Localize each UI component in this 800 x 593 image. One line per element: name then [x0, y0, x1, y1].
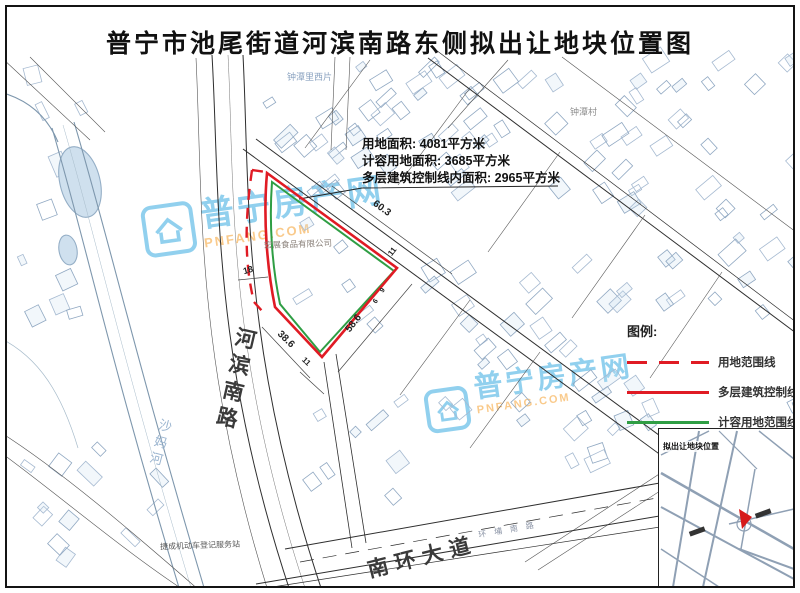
inset-road-tag	[689, 526, 706, 536]
info-line-land-area: 用地面积: 4081平方米	[362, 136, 560, 153]
inset-map-canvas	[659, 429, 796, 589]
red-dashed-line-swatch	[627, 361, 709, 364]
company-label: 宏展食品有限公司	[264, 237, 332, 251]
legend-item-label: 用地范围线	[718, 354, 776, 370]
info-value: 2965平方米	[495, 171, 560, 185]
water-layer	[0, 92, 205, 591]
info-line-frr-area: 计容用地面积: 3685平方米	[362, 153, 560, 170]
legend-title: 图例:	[627, 321, 799, 340]
inset-locator-map: 拟出让地块位置	[658, 428, 797, 590]
legend-item-building-control: 多层建筑控制线	[627, 384, 799, 400]
info-label: 计容用地面积:	[362, 154, 441, 168]
map-title: 普宁市池尾街道河滨南路东侧拟出让地块位置图	[0, 24, 800, 60]
inset-road-tag	[755, 508, 772, 518]
plot-info-box: 用地面积: 4081平方米 计容用地面积: 3685平方米 多层建筑控制线内面积…	[362, 136, 560, 187]
inset-label: 拟出让地块位置	[662, 441, 720, 452]
inset-roads-layer	[661, 431, 794, 587]
dimension-lines-layer	[238, 186, 558, 394]
place-label-zhongtan-village: 钟潭村	[570, 105, 597, 118]
place-label-zhongtan-west: 钟潭里西片	[287, 70, 332, 83]
info-label: 多层建筑控制线内面积:	[362, 171, 491, 185]
legend-item-label: 多层建筑控制线	[718, 384, 799, 400]
legend: 图例: 用地范围线 多层建筑控制线 计容用地范围线	[627, 321, 799, 430]
legend-item-land-boundary: 用地范围线	[627, 354, 799, 370]
green-solid-line-swatch	[627, 421, 709, 424]
red-solid-line-swatch	[627, 391, 709, 394]
info-label: 用地面积:	[362, 137, 416, 151]
info-value: 3685平方米	[445, 154, 510, 168]
info-value: 4081平方米	[420, 137, 485, 151]
info-line-control-area: 多层建筑控制线内面积: 2965平方米	[362, 170, 560, 187]
plot-location-map-page: 普宁房产网 PNFANG.COM 普宁房产网 PNFANG.COM	[0, 0, 800, 593]
